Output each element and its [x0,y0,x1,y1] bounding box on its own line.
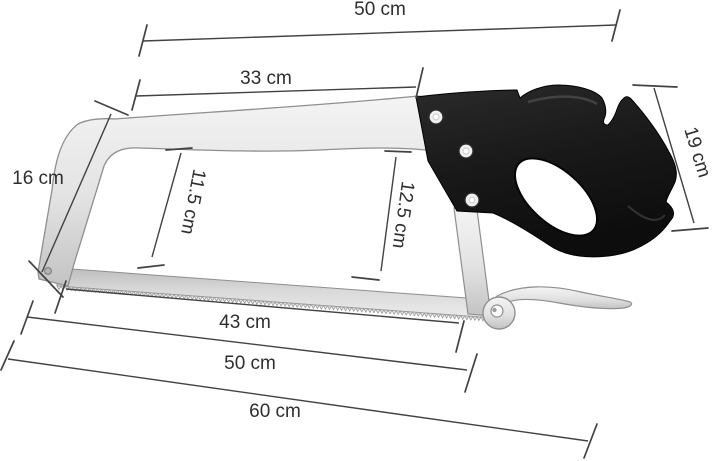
dimension-inner-right-height: 12.5 cm [352,151,418,280]
dimension-handle-side-label: 19 cm [679,125,714,181]
saw-illustration [38,85,676,329]
dimension-left-height-label: 16 cm [12,168,64,189]
dimension-top-overall: 50 cm [139,0,620,56]
handle-rivet [465,193,479,207]
dimension-bottom-overall: 60 cm [1,341,597,458]
tension-lever-arm [497,287,632,309]
handle-rivet [429,110,443,124]
dimension-top-inner-label: 33 cm [240,68,292,89]
tension-lever-scroll-dot [492,308,496,312]
dimension-bottom-inner-label: 43 cm [219,312,271,333]
dimension-inner-left-height: 11.5 cm [138,148,209,268]
dimension-bottom-blade-label: 50 cm [224,353,276,374]
dimension-inner-left-height-label: 11.5 cm [176,167,209,236]
dimension-top-overall-label: 50 cm [354,0,406,20]
frame-clamp-screw [45,268,52,275]
dimension-bottom-overall-label: 60 cm [249,401,301,422]
meat-saw-dimension-diagram: 50 cm 33 cm 16 cm 11.5 cm 12.5 cm [0,0,720,461]
handle-rivet [459,144,473,158]
diagram-canvas: 50 cm 33 cm 16 cm 11.5 cm 12.5 cm [0,0,720,461]
